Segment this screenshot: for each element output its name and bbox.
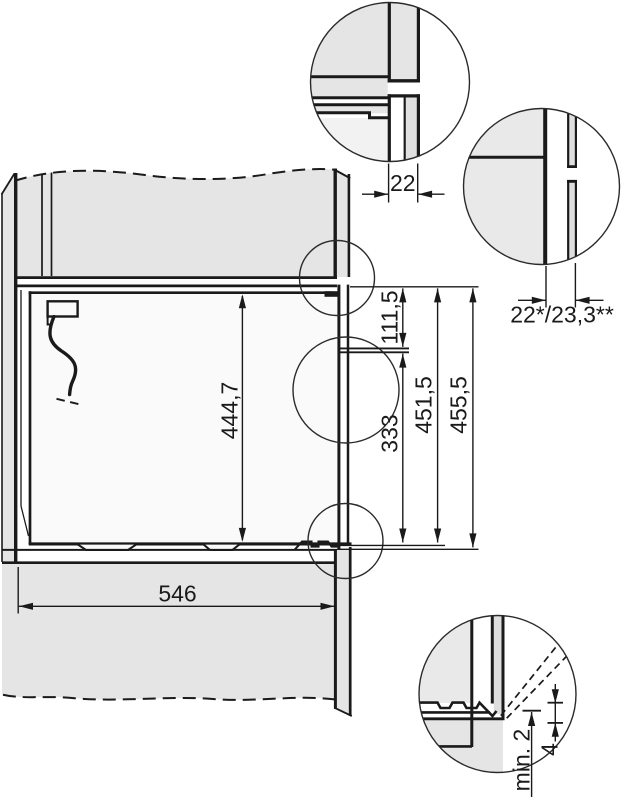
main-view: 444,7 111,5 333 451,5 455,5 <box>2 169 479 717</box>
installation-diagram: 444,7 111,5 333 451,5 455,5 <box>0 0 624 800</box>
dim-top-gap: 22 <box>362 164 445 203</box>
cabinet-section-fill <box>306 0 388 76</box>
door-open-dashed-2 <box>505 647 576 721</box>
dim-label-upper-offset: 111,5 <box>377 290 403 344</box>
appliance-side-fill <box>418 613 472 703</box>
left-wall-perspective-diagonal <box>21 506 29 536</box>
dim-label-bottom-clearance: min. 2 <box>509 729 535 792</box>
arrow-right <box>374 191 388 198</box>
dim-label-lower-offset: 333 <box>377 414 403 452</box>
detail-side-gap: 22*/23,3** <box>462 106 620 328</box>
junction-box <box>48 301 78 316</box>
installation-drawing-page: 444,7 111,5 333 451,5 455,5 <box>0 0 624 800</box>
dim-side-gap: 22*/23,3** <box>510 263 614 328</box>
arrow <box>469 288 476 302</box>
upper-panel-fill <box>390 0 418 80</box>
arrow <box>434 529 441 543</box>
dim-label-bottom-overlap: 4 <box>537 743 563 756</box>
right-front-frame <box>336 171 350 278</box>
lower-cabinet-fill <box>418 720 503 776</box>
side-panel-fill <box>462 107 544 267</box>
dim-label-inner-height-1: 451,5 <box>411 376 437 434</box>
dim-label-top-gap: 22 <box>390 170 416 196</box>
niche-top-right-step <box>325 291 340 297</box>
arrow-left <box>418 191 432 198</box>
right-lower-column <box>335 547 351 716</box>
detail-side-content <box>462 106 577 267</box>
detail-top-content <box>306 0 420 168</box>
arrow <box>469 533 476 547</box>
front-strip-fill <box>494 613 502 714</box>
arrow-down <box>552 689 559 703</box>
lower-strip-fill <box>406 98 417 164</box>
appliance-niche <box>31 294 337 543</box>
arrow <box>399 354 406 368</box>
top-cabinet-panel <box>14 169 337 277</box>
arrow-up <box>552 723 559 737</box>
arrow <box>399 529 406 543</box>
dim-right-group: 111,5 333 451,5 455,5 <box>338 287 479 550</box>
dim-label-inner-height-2: 455,5 <box>446 376 472 434</box>
shelf-band-fill <box>306 79 388 97</box>
dim-label-niche-height: 444,7 <box>217 382 243 440</box>
dim-label-niche-width: 546 <box>158 581 196 607</box>
strip-lower-fill <box>569 182 575 266</box>
detail-bottom-front: min. 2 4 <box>418 613 576 797</box>
dim-label-side-gap: 22*/23,3** <box>510 302 614 328</box>
trim-profile-line <box>419 703 497 716</box>
left-wall-panel <box>2 174 15 562</box>
dim-bottom-overlap: 4 <box>537 684 564 756</box>
arrow <box>434 288 441 302</box>
